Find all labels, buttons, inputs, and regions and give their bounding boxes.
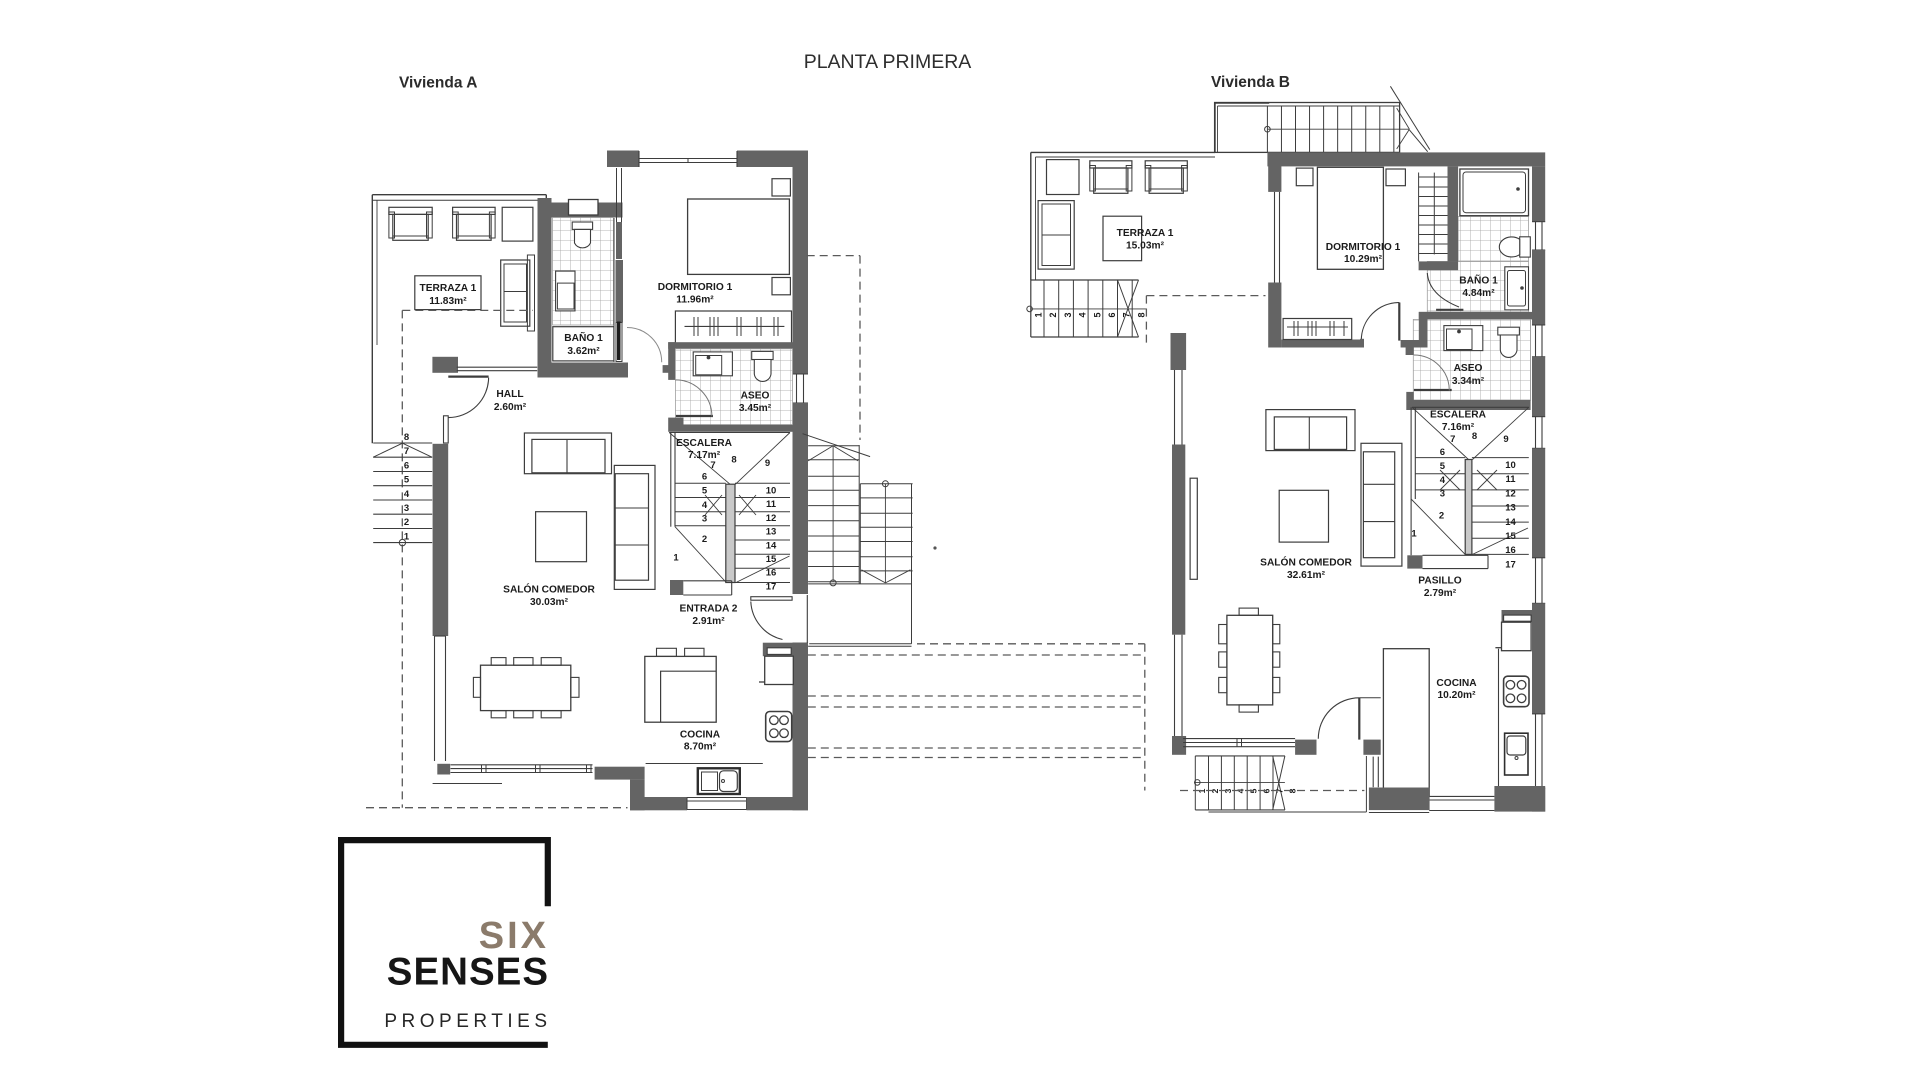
svg-text:13: 13	[766, 527, 777, 538]
svg-text:5: 5	[1440, 461, 1446, 472]
svg-text:ASEO: ASEO	[1454, 363, 1483, 374]
svg-text:8: 8	[1136, 312, 1146, 317]
svg-text:10: 10	[766, 486, 777, 497]
svg-text:7: 7	[1450, 434, 1455, 445]
svg-text:ESCALERA: ESCALERA	[1430, 410, 1487, 421]
svg-text:2.60m²: 2.60m²	[494, 402, 527, 413]
svg-text:1: 1	[673, 553, 679, 564]
svg-text:8.70m²: 8.70m²	[684, 742, 717, 753]
svg-text:12: 12	[766, 513, 777, 524]
svg-text:12: 12	[1505, 488, 1516, 499]
svg-text:6: 6	[404, 460, 409, 471]
svg-text:SENSES: SENSES	[387, 951, 549, 994]
svg-text:15: 15	[1505, 531, 1516, 542]
svg-text:3: 3	[1440, 489, 1445, 500]
svg-text:DORMITORIO 1: DORMITORIO 1	[658, 282, 733, 293]
svg-text:7: 7	[710, 460, 715, 471]
svg-text:COCINA: COCINA	[1436, 678, 1477, 689]
svg-text:8: 8	[731, 455, 736, 466]
svg-text:PASILLO: PASILLO	[1418, 576, 1461, 587]
svg-text:3: 3	[404, 503, 409, 514]
svg-text:TERRAZA 1: TERRAZA 1	[420, 283, 477, 294]
svg-text:8: 8	[404, 432, 409, 443]
svg-text:6: 6	[1107, 312, 1117, 317]
svg-text:2.79m²: 2.79m²	[1424, 588, 1457, 599]
svg-text:BAÑO 1: BAÑO 1	[1459, 274, 1498, 287]
svg-text:3: 3	[1063, 312, 1073, 317]
svg-text:3.34m²: 3.34m²	[1452, 376, 1485, 387]
svg-text:Vivienda A: Vivienda A	[399, 75, 477, 92]
svg-text:14: 14	[1505, 517, 1516, 528]
svg-text:HALL: HALL	[496, 389, 523, 400]
svg-text:32.61m²: 32.61m²	[1287, 570, 1326, 581]
svg-text:15.03m²: 15.03m²	[1126, 241, 1165, 252]
svg-text:SALÓN COMEDOR: SALÓN COMEDOR	[1260, 556, 1352, 569]
svg-text:16: 16	[1505, 545, 1516, 556]
svg-text:4: 4	[404, 489, 410, 500]
svg-text:11: 11	[766, 499, 777, 510]
svg-text:3.45m²: 3.45m²	[739, 403, 772, 414]
svg-text:2: 2	[1439, 511, 1444, 522]
svg-text:10.20m²: 10.20m²	[1438, 690, 1477, 701]
svg-text:ENTRADA 2: ENTRADA 2	[680, 604, 738, 615]
svg-text:11: 11	[1505, 474, 1516, 485]
svg-text:3.62m²: 3.62m²	[567, 346, 600, 357]
svg-text:2: 2	[702, 534, 707, 545]
svg-text:11.96m²: 11.96m²	[676, 295, 714, 306]
svg-text:ESCALERA: ESCALERA	[676, 438, 733, 449]
svg-text:2: 2	[404, 517, 409, 528]
svg-text:Vivienda B: Vivienda B	[1211, 74, 1290, 91]
svg-text:TERRAZA 1: TERRAZA 1	[1117, 228, 1174, 239]
svg-text:1: 1	[1411, 529, 1417, 540]
svg-text:10: 10	[1505, 460, 1516, 471]
svg-text:3: 3	[702, 514, 707, 525]
svg-text:17: 17	[1505, 559, 1516, 570]
svg-text:7.16m²: 7.16m²	[1442, 422, 1475, 433]
svg-text:DORMITORIO 1: DORMITORIO 1	[1326, 242, 1401, 253]
svg-text:1: 1	[404, 531, 410, 542]
svg-text:4: 4	[702, 500, 708, 511]
svg-text:COCINA: COCINA	[680, 730, 721, 741]
svg-text:5: 5	[702, 486, 708, 497]
svg-text:5: 5	[1092, 312, 1102, 317]
svg-text:13: 13	[1505, 503, 1516, 514]
svg-text:11.83m²: 11.83m²	[429, 296, 467, 307]
svg-text:7.17m²: 7.17m²	[688, 450, 721, 461]
svg-text:4: 4	[1440, 475, 1446, 486]
svg-text:7: 7	[1122, 312, 1132, 317]
svg-text:2: 2	[1048, 312, 1058, 317]
svg-text:15: 15	[766, 554, 777, 565]
svg-text:9: 9	[1503, 434, 1508, 445]
svg-text:BAÑO 1: BAÑO 1	[564, 331, 603, 344]
svg-text:SALÓN COMEDOR: SALÓN COMEDOR	[503, 583, 595, 596]
svg-text:2.91m²: 2.91m²	[692, 616, 725, 627]
svg-text:7: 7	[404, 446, 409, 457]
svg-text:9: 9	[765, 458, 770, 469]
svg-text:6: 6	[702, 472, 707, 483]
svg-text:4.84m²: 4.84m²	[1462, 288, 1495, 299]
svg-text:16: 16	[766, 568, 777, 579]
svg-text:PROPERTIES: PROPERTIES	[384, 1011, 551, 1032]
svg-text:5: 5	[404, 475, 410, 486]
svg-text:30.03m²: 30.03m²	[530, 597, 569, 608]
svg-text:PLANTA PRIMERA: PLANTA PRIMERA	[804, 51, 972, 73]
svg-text:10.29m²: 10.29m²	[1344, 254, 1383, 265]
svg-text:14: 14	[766, 540, 777, 551]
svg-text:1: 1	[1034, 312, 1044, 317]
svg-text:ASEO: ASEO	[741, 391, 770, 402]
svg-text:8: 8	[1472, 431, 1477, 442]
svg-text:4: 4	[1078, 312, 1088, 317]
svg-text:6: 6	[1440, 447, 1445, 458]
svg-text:17: 17	[766, 581, 777, 592]
